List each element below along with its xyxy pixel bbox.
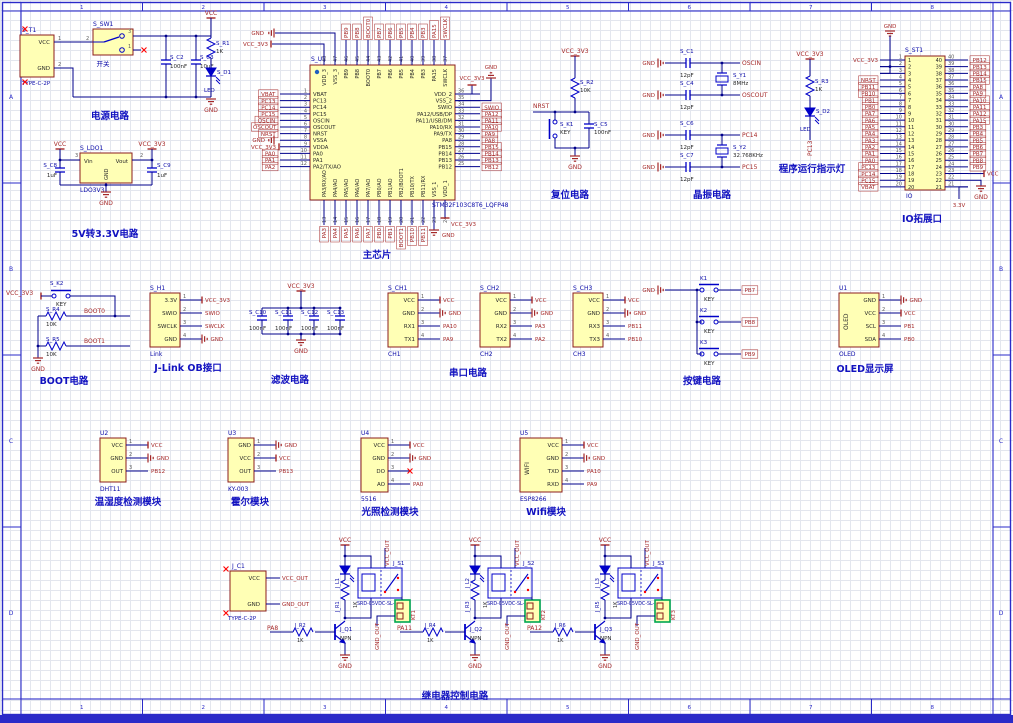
- net-label[interactable]: PB0: [865, 105, 876, 111]
- component-S_D2[interactable]: S_D2LED: [800, 108, 830, 133]
- net-label[interactable]: PA2: [265, 165, 275, 171]
- net-label[interactable]: PB5: [399, 27, 405, 38]
- component-S_R5[interactable]: S_R510K: [46, 337, 66, 358]
- net-label[interactable]: PB14: [485, 152, 500, 158]
- net-label[interactable]: BOOT1: [84, 338, 105, 345]
- net-label[interactable]: PB6: [388, 27, 394, 38]
- net-label[interactable]: OSCOUT: [253, 125, 277, 131]
- net-label[interactable]: PA10: [485, 125, 499, 131]
- pin-name: 19: [908, 178, 914, 184]
- junction-dot: [37, 345, 40, 348]
- component-transistor[interactable]: J_Q3NPN: [575, 621, 613, 643]
- pin-number: 1: [257, 439, 260, 445]
- net-label[interactable]: PC15: [861, 178, 876, 184]
- net-label[interactable]: SWIO: [484, 105, 500, 111]
- net-label[interactable]: PA1: [265, 158, 275, 164]
- pin-name: PA9/TX: [434, 132, 453, 138]
- capacitor-symbol[interactable]: [335, 316, 345, 320]
- led-symbol[interactable]: [600, 566, 614, 582]
- wire[interactable]: [880, 36, 890, 67]
- net-label[interactable]: NRST: [533, 103, 549, 110]
- component-S_CH1[interactable]: S_CH1CH1VCC1VCCGND2GNDRX13PA10TX14PA9: [388, 285, 461, 358]
- net-label[interactable]: PB11: [628, 324, 642, 330]
- pin-name: SDA: [865, 337, 877, 343]
- pin-name: VDD_3: [322, 69, 328, 86]
- net-label[interactable]: PB8: [973, 158, 984, 164]
- power-label: VCC_3V3: [243, 42, 268, 48]
- part-name: ESP8266: [520, 496, 547, 503]
- key-button-symbol[interactable]: [51, 291, 71, 299]
- net-label[interactable]: PA9: [973, 92, 984, 98]
- net-label[interactable]: PB13: [279, 469, 294, 475]
- relay-symbol[interactable]: [358, 568, 402, 598]
- net-label[interactable]: PB4: [410, 27, 416, 38]
- net-label[interactable]: GND_OUT: [505, 622, 511, 650]
- net-label[interactable]: PA12: [485, 112, 499, 118]
- component-S_K1[interactable]: S_K1KEY: [550, 119, 574, 139]
- component-C1[interactable]: S_C112pF: [680, 49, 694, 79]
- component-base-res[interactable]: J_R61K: [553, 623, 573, 644]
- resistor-symbol[interactable]: [553, 628, 573, 636]
- net-label[interactable]: PB12: [973, 58, 987, 64]
- component-C11[interactable]: S_C11100nF: [275, 308, 293, 334]
- net-label[interactable]: PA15: [432, 24, 438, 38]
- net-label[interactable]: PB11: [421, 228, 427, 242]
- net-label[interactable]: PA1: [865, 152, 875, 158]
- resistor-symbol[interactable]: [601, 580, 609, 600]
- net-label[interactable]: PA12: [527, 625, 542, 632]
- net-label[interactable]: PA9: [587, 482, 598, 488]
- component-transistor[interactable]: J_Q2NPN: [445, 621, 482, 643]
- net-label[interactable]: PB12: [485, 165, 499, 171]
- component-S_CH3[interactable]: S_CH3CH3VCC1VCCGND2GNDRX33PB11TX34PB10: [573, 285, 646, 358]
- net-label[interactable]: PA12: [973, 112, 987, 118]
- pin-number: 35: [948, 88, 954, 94]
- pin-number: 41: [399, 56, 405, 62]
- capacitor-symbol[interactable]: [686, 162, 690, 172]
- pin-name: VDD_2: [434, 92, 452, 98]
- net-label[interactable]: PB1: [904, 324, 915, 330]
- capacitor-symbol[interactable]: [686, 58, 690, 68]
- net-label[interactable]: PB5: [973, 138, 984, 144]
- net-label[interactable]: PB8: [355, 27, 361, 38]
- component-C4[interactable]: S_C412pF: [680, 81, 694, 111]
- power-label: VCC: [151, 443, 163, 449]
- pin-name: PB4: [410, 69, 416, 79]
- pin-name: GND: [587, 311, 600, 317]
- border-column-label: 3: [323, 5, 327, 11]
- net-label[interactable]: PA11: [973, 105, 987, 111]
- component-output-connector[interactable]: KT1: [395, 600, 417, 622]
- component-S_C8[interactable]: S_C81uF: [43, 163, 65, 185]
- component-base-res[interactable]: J_R41K: [423, 623, 443, 644]
- net-label[interactable]: PA4: [333, 228, 339, 239]
- border-column-label: 1: [80, 705, 84, 711]
- component-S_R3[interactable]: S_R31K: [806, 76, 829, 96]
- value-label: 10K: [46, 352, 57, 358]
- pin-number: 11: [301, 155, 307, 161]
- designator: S_D1: [217, 70, 231, 76]
- resistor-symbol[interactable]: [806, 76, 814, 96]
- pin-number: 16: [896, 155, 902, 161]
- pin-number: 3: [421, 320, 424, 326]
- net-label[interactable]: PA3: [535, 324, 546, 330]
- led-symbol[interactable]: [340, 566, 354, 582]
- pin-number: 18: [377, 217, 383, 223]
- net-label[interactable]: PB9: [973, 165, 984, 171]
- net-label[interactable]: PC15: [742, 164, 758, 171]
- power-label: GND: [910, 298, 923, 304]
- component-output-connector[interactable]: KT3: [655, 600, 677, 622]
- net-label[interactable]: NRST: [861, 78, 876, 84]
- pin-number: 1: [304, 89, 307, 95]
- net-label[interactable]: PB6: [973, 145, 984, 151]
- relay-symbol[interactable]: [618, 568, 662, 598]
- power-label: GND: [598, 663, 612, 670]
- net-label[interactable]: PB8: [745, 320, 756, 326]
- net-label[interactable]: PA2: [535, 337, 545, 343]
- component-S_R4[interactable]: S_R410K: [46, 307, 66, 328]
- pin-name: RXD: [547, 482, 559, 488]
- junction-dot: [105, 184, 108, 187]
- wire[interactable]: [555, 138, 589, 148]
- net-label[interactable]: GND_OUT: [375, 622, 381, 650]
- component-U3[interactable]: U3KY-003GND1GNDVCC2VCCOUT3PB13: [228, 430, 297, 493]
- net-label[interactable]: PA7: [366, 228, 372, 239]
- component-S_C5[interactable]: S_C5100nF: [584, 112, 611, 148]
- capacitor-symbol[interactable]: [283, 316, 293, 320]
- ground-icon: [340, 655, 350, 660]
- pin-number: 4: [421, 333, 424, 339]
- pin-name: PA7/AO: [366, 179, 372, 197]
- power-label: VCC: [205, 10, 217, 17]
- component-C7[interactable]: S_C712pF: [680, 153, 694, 183]
- pin-name: TX2: [495, 337, 507, 343]
- component-S_R2[interactable]: S_R210K: [571, 78, 594, 98]
- power-label: GND: [642, 288, 655, 294]
- crystal-symbol[interactable]: [716, 73, 728, 85]
- capacitor-symbol[interactable]: [584, 124, 594, 128]
- key-button-symbol[interactable]: [699, 285, 719, 293]
- key-button-symbol[interactable]: [550, 119, 558, 139]
- junction-dot: [287, 333, 290, 336]
- component-S_H1[interactable]: S_H1Link3.3V1VCC_3V3SWIO2SWIOSWCLK3SWCLK…: [150, 285, 230, 358]
- junction-dot: [313, 333, 316, 336]
- net-label[interactable]: PB10: [861, 92, 876, 98]
- component-C10[interactable]: S_C10100nF: [249, 308, 267, 334]
- npn-transistor-symbol[interactable]: J_Q3NPN: [575, 621, 613, 643]
- resistor-symbol[interactable]: [46, 342, 66, 350]
- pin-name: 35: [936, 91, 942, 97]
- net-label[interactable]: PB7: [745, 288, 756, 294]
- net-label[interactable]: PC13: [261, 99, 276, 105]
- component-Y2[interactable]: S_Y232.768KHz: [716, 145, 763, 159]
- pin-name: 38: [936, 71, 942, 77]
- component-J_C1[interactable]: J_C1TYPE-C-2PVCCGND: [224, 563, 267, 622]
- pin-name: 30: [936, 125, 942, 131]
- pin-number: 12: [301, 161, 307, 167]
- net-label[interactable]: PB14: [973, 72, 988, 78]
- designator: J_L3: [595, 578, 601, 589]
- net-label[interactable]: PC13: [861, 165, 876, 171]
- component-S_CH2[interactable]: S_CH2CH2VCC1VCCGND2GNDRX23PA3TX24PA2: [480, 285, 553, 358]
- pin-number: 3: [391, 465, 394, 471]
- pin-name: OUT: [111, 469, 123, 475]
- net-label[interactable]: VCC_OUT: [385, 539, 391, 566]
- pin-name: PA3/RX/AO: [322, 170, 328, 197]
- net-label[interactable]: OSCIN: [258, 119, 275, 125]
- net-label[interactable]: PA0: [265, 152, 276, 158]
- net-label[interactable]: PA8: [267, 625, 278, 632]
- block-power: S_T1TYPE-C-2PVCCGND122S_SW1开关31S_C2100nF…: [20, 10, 231, 122]
- part-name: TYPE-C-2P: [227, 616, 257, 622]
- pin-number: 26: [458, 155, 464, 161]
- net-label[interactable]: PC13: [807, 140, 814, 156]
- power-label: 3.3V: [953, 203, 966, 209]
- net-label[interactable]: PB9: [745, 352, 756, 358]
- net-label[interactable]: PA3: [865, 138, 876, 144]
- pin-number: 29: [458, 135, 464, 141]
- net-label[interactable]: PA9: [443, 337, 454, 343]
- net-label[interactable]: VCC_OUT: [282, 576, 309, 582]
- pin-number: 30: [458, 128, 464, 134]
- pin-name: VSS_2: [436, 99, 452, 105]
- net-label[interactable]: PC14: [261, 105, 276, 111]
- capacitor-symbol[interactable]: [686, 130, 690, 140]
- component-U1[interactable]: U1OLEDOLEDGND1GNDVCC2VCCSCL3PB1SDA4PB0: [839, 285, 922, 358]
- power-label: GND: [642, 165, 655, 171]
- net-label[interactable]: PA2: [865, 145, 875, 151]
- pin-name: 6: [908, 91, 911, 97]
- power-label: GND: [642, 61, 655, 67]
- resistor-symbol[interactable]: [46, 312, 66, 320]
- resistor-symbol[interactable]: [341, 580, 349, 600]
- relay-channel: VCCJ_L3J_R51KJ_S3SRD-05VDC-SL-CVCC_OUTJ_…: [527, 537, 677, 670]
- pin-name: PB15: [438, 145, 452, 151]
- net-label[interactable]: BOOT0: [366, 18, 372, 38]
- power-label: VCC_3V3: [561, 48, 588, 55]
- power-label: VCC_3V3: [796, 51, 823, 58]
- pin-number: 1: [882, 294, 885, 300]
- net-label[interactable]: PB4: [973, 132, 984, 138]
- power-label: VCC: [339, 537, 351, 544]
- pin-name: PA5/AO: [344, 179, 350, 197]
- power-label: VCC: [443, 298, 455, 304]
- net-label[interactable]: VBAT: [861, 185, 876, 191]
- net-label[interactable]: PA8: [973, 85, 984, 91]
- resistor-symbol[interactable]: [571, 78, 579, 98]
- net-label[interactable]: PB3: [421, 27, 427, 38]
- net-label[interactable]: GND_OUT: [635, 622, 641, 650]
- component-S_C9[interactable]: S_C91uF: [147, 163, 171, 185]
- net-label[interactable]: PC14: [861, 172, 876, 178]
- pin-name: PB0/AO: [377, 178, 383, 197]
- net-label[interactable]: BOOT0: [84, 308, 105, 315]
- wire[interactable]: [880, 67, 890, 74]
- pin-name: 1: [908, 58, 911, 64]
- component-U2[interactable]: U2DHT11VCC1VCCGND2GNDOUT3PB12: [100, 430, 169, 493]
- net-label[interactable]: PA5: [865, 125, 876, 131]
- net-label[interactable]: PB1: [865, 98, 876, 104]
- net-label[interactable]: PB9: [344, 27, 350, 38]
- component-S_SW1[interactable]: S_SW1开关31: [93, 21, 133, 68]
- net-label[interactable]: PB13: [485, 158, 500, 164]
- border-row-label: B: [999, 266, 1003, 273]
- pin-number: 21: [948, 181, 954, 187]
- net-label[interactable]: PA11: [397, 625, 412, 632]
- pin-number: 13: [322, 217, 328, 223]
- component-Y1[interactable]: S_Y18MHz: [716, 73, 748, 87]
- crystal-symbol[interactable]: [716, 145, 728, 157]
- wire[interactable]: [968, 180, 981, 186]
- net-label[interactable]: PA11: [485, 119, 499, 125]
- power-label: VCC: [599, 537, 611, 544]
- pin-name: RX1: [404, 324, 415, 330]
- ground-icon: [901, 296, 906, 305]
- sheet-border: 1122334455667788AABBCCDD: [0, 3, 1013, 723]
- component-C12[interactable]: S_C12100nF: [301, 308, 319, 334]
- component-S_C2[interactable]: S_C2100nF: [161, 36, 187, 97]
- pin-number: 2: [129, 452, 132, 458]
- border-column-label: 5: [566, 5, 570, 11]
- net-label[interactable]: PB3: [973, 125, 984, 131]
- net-label[interactable]: VCC_OUT: [515, 539, 521, 566]
- schematic-sheet: 1122334455667788AABBCCDDS_T1TYPE-C-2PVCC…: [0, 0, 1013, 723]
- component-C13[interactable]: S_C13100nF: [327, 308, 345, 334]
- component-U4[interactable]: U45516VCC1VCCGND2GNDDO3AO4PA0: [361, 430, 431, 503]
- component-output-connector[interactable]: KT2: [525, 600, 547, 622]
- net-label[interactable]: SWCLK: [205, 324, 225, 330]
- ground-icon: [658, 131, 663, 140]
- component-U5[interactable]: U5ESP8266WIFIVCC1VCCGND2GNDTXD3PA10RXD4P…: [520, 430, 605, 503]
- net-label[interactable]: PA7: [865, 112, 876, 118]
- relay-symbol[interactable]: [488, 568, 532, 598]
- net-label[interactable]: PA6: [865, 118, 876, 124]
- net-label[interactable]: SWCLK: [443, 18, 449, 38]
- pin-number: 4: [606, 333, 609, 339]
- wire[interactable]: [54, 68, 73, 97]
- component-S_ST1[interactable]: S_ST1IO112233445566778899101011111212131…: [880, 47, 968, 200]
- pin-number: 27: [458, 148, 464, 154]
- net-label[interactable]: PB7: [973, 152, 984, 158]
- block-filter: VCC_3V3S_C10100nFS_C11100nFS_C12100nFS_C…: [249, 283, 345, 386]
- power-label: VCC_3V3: [6, 290, 33, 297]
- block-caption: 复位电路: [550, 189, 590, 201]
- net-label[interactable]: PA10: [587, 469, 601, 475]
- npn-transistor-symbol[interactable]: J_Q1NPN: [315, 621, 352, 643]
- component-S_T1[interactable]: S_T1TYPE-C-2PVCCGND12: [20, 27, 61, 88]
- net-label[interactable]: BOOT1: [399, 228, 405, 247]
- designator: S_R1: [216, 41, 230, 47]
- net-label[interactable]: PB12: [151, 469, 165, 475]
- led-symbol[interactable]: [470, 566, 484, 582]
- component-C6[interactable]: S_C612pF: [680, 121, 694, 151]
- pin-name: AO: [377, 482, 386, 488]
- component-K1[interactable]: K1KEY: [699, 276, 719, 303]
- net-label[interactable]: PB1: [388, 228, 394, 239]
- key-button-symbol[interactable]: [699, 349, 719, 357]
- block-ldo: S_LDO1LDO3V3VinVoutGNDVCC3S_C81uFVCC_3V3…: [43, 141, 171, 240]
- wire[interactable]: [959, 187, 968, 199]
- net-label[interactable]: PB7: [377, 27, 383, 38]
- net-label[interactable]: GND_OUT: [282, 602, 310, 608]
- net-label[interactable]: PA10: [443, 324, 457, 330]
- component-S_K2[interactable]: S_K2KEY: [50, 281, 71, 308]
- power-label: GND: [442, 233, 455, 239]
- net-label[interactable]: PB10: [410, 228, 416, 243]
- capacitor-symbol[interactable]: [257, 316, 267, 320]
- designator: S_C9: [157, 163, 171, 169]
- net-label[interactable]: PA5: [344, 228, 350, 239]
- npn-transistor-symbol[interactable]: J_Q2NPN: [445, 621, 482, 643]
- capacitor-symbol[interactable]: [309, 316, 319, 320]
- component-S_D1[interactable]: S_D1LED: [204, 68, 231, 94]
- net-label[interactable]: PB11: [861, 85, 875, 91]
- net-label[interactable]: PA0: [413, 482, 424, 488]
- pin-number: 20: [896, 181, 902, 187]
- net-label[interactable]: SWIO: [205, 311, 221, 317]
- net-label[interactable]: PB15: [485, 145, 500, 151]
- ground-icon: [658, 91, 663, 100]
- part-name: DHT11: [100, 486, 121, 493]
- pin-name: 21: [936, 185, 942, 191]
- capacitor-symbol[interactable]: [686, 90, 690, 100]
- power-label: GND: [642, 133, 655, 139]
- net-label[interactable]: PA6: [355, 228, 361, 239]
- pin-name: RX3: [589, 324, 601, 330]
- key-button-symbol[interactable]: [699, 317, 719, 325]
- resistor-symbol[interactable]: [293, 628, 313, 636]
- net-label[interactable]: PA8: [485, 138, 496, 144]
- power-label: GND: [31, 366, 45, 373]
- net-label[interactable]: PA4: [865, 132, 876, 138]
- component-base-res[interactable]: J_R21K: [293, 623, 313, 644]
- net-label[interactable]: VBAT: [261, 92, 276, 98]
- net-label[interactable]: PA15: [973, 118, 987, 124]
- net-label[interactable]: OSCIN: [742, 60, 761, 67]
- net-label[interactable]: PA10: [973, 98, 987, 104]
- ground-icon: [625, 309, 630, 318]
- pin-number: 27: [948, 141, 954, 147]
- block-caption: Wifi模块: [526, 506, 566, 518]
- power-label: VCC: [535, 298, 547, 304]
- value-label: 100nF: [594, 130, 611, 136]
- net-label[interactable]: PB0: [377, 228, 383, 239]
- net-label[interactable]: PA0: [865, 158, 876, 164]
- net-label[interactable]: PB0: [904, 337, 915, 343]
- net-label[interactable]: PB13: [973, 65, 988, 71]
- designator: J_S1: [392, 561, 404, 567]
- pin-name: PB9: [344, 69, 350, 79]
- net-label[interactable]: PC14: [742, 132, 758, 139]
- capacitor-symbol[interactable]: [147, 168, 157, 172]
- net-label[interactable]: OSCOUT: [742, 92, 768, 99]
- net-label[interactable]: PB10: [628, 337, 643, 343]
- pin-number: 4: [183, 333, 186, 339]
- net-label[interactable]: PA9: [485, 132, 496, 138]
- junction-dot: [114, 315, 117, 318]
- pin-name: PA2/TX/AO: [313, 165, 341, 171]
- net-label[interactable]: PC15: [261, 112, 276, 118]
- net-label[interactable]: PB15: [973, 78, 988, 84]
- net-label[interactable]: PA3: [322, 228, 328, 239]
- resistor-symbol[interactable]: [471, 580, 479, 600]
- junction-dot: [300, 333, 303, 336]
- pin-name: PA6/AO: [355, 179, 361, 197]
- net-label[interactable]: VCC_OUT: [645, 539, 651, 566]
- component-transistor[interactable]: J_Q1NPN: [315, 621, 352, 643]
- resistor-symbol[interactable]: [423, 628, 443, 636]
